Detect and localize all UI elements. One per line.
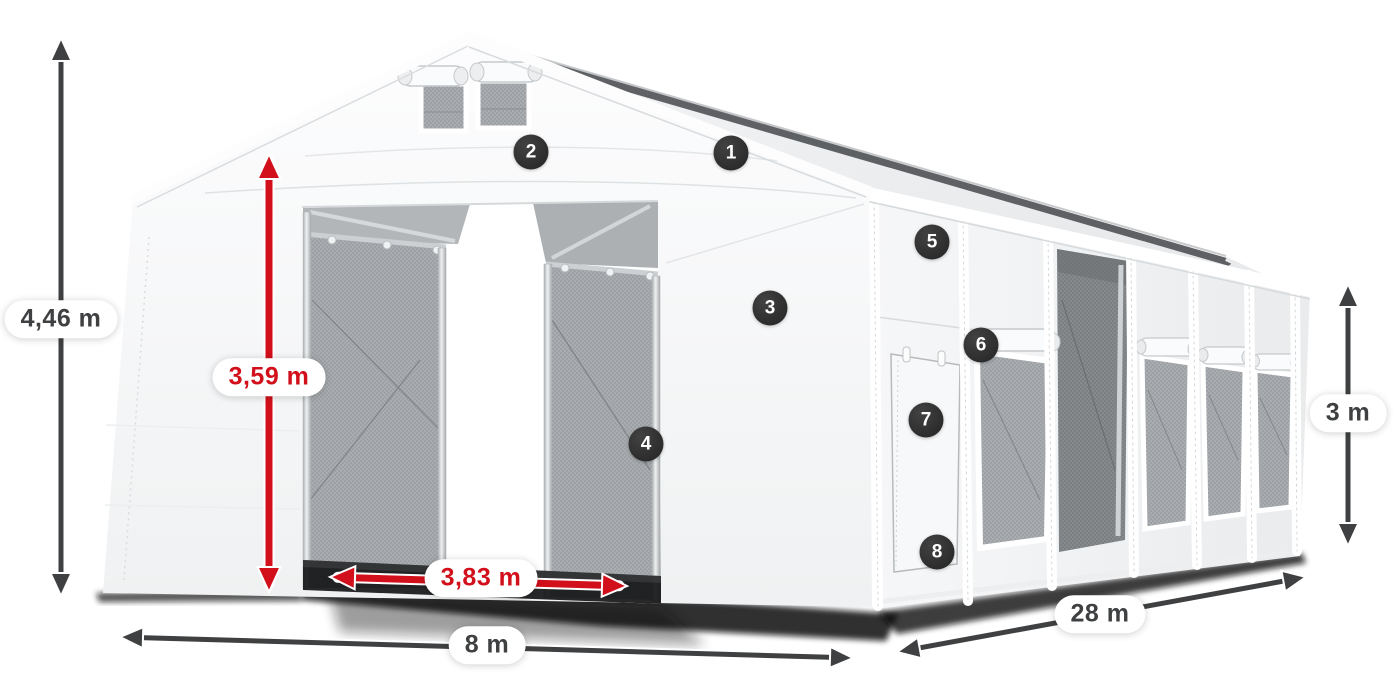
- feature-marker-5: 5: [915, 225, 950, 260]
- label-door-height: 3,59 m: [213, 358, 326, 396]
- feature-marker-8: 8: [920, 535, 955, 570]
- label-total-height: 4,46 m: [5, 300, 118, 338]
- side-doorway: [1057, 249, 1128, 552]
- label-side-length: 28 m: [1055, 595, 1146, 633]
- side-windows-far: [1136, 338, 1300, 529]
- feature-marker-1: 1: [714, 136, 749, 171]
- feature-marker-2: 2: [514, 135, 549, 170]
- feature-marker-3: 3: [753, 291, 788, 326]
- label-door-width: 3,83 m: [425, 559, 538, 597]
- tent-dimension-diagram: 1 2 3 4 5 6 7 8 4,46 m 3,59 m 3,83 m 8 m…: [0, 0, 1400, 700]
- front-entrance-opening: [302, 200, 661, 604]
- feature-marker-6: 6: [964, 328, 999, 363]
- feature-marker-4: 4: [629, 427, 664, 462]
- label-front-width: 8 m: [449, 626, 526, 664]
- feature-marker-7: 7: [909, 403, 944, 438]
- label-side-height: 3 m: [1310, 394, 1387, 432]
- tent-illustration: [0, 0, 1400, 700]
